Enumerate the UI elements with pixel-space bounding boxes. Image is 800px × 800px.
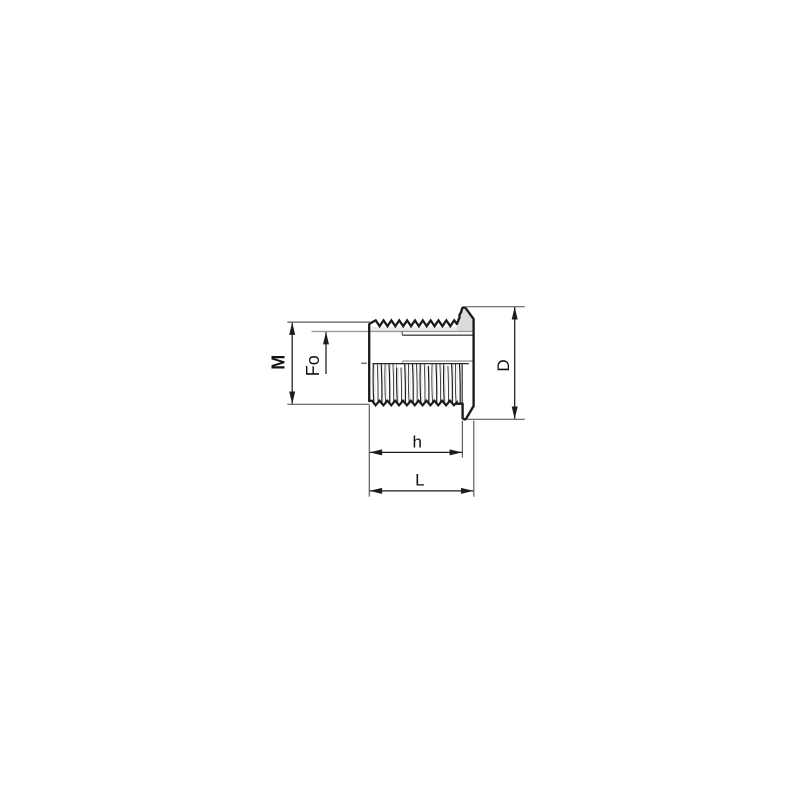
svg-text:L: L [415, 470, 424, 489]
svg-text:Fo: Fo [303, 355, 323, 376]
svg-text:h: h [412, 433, 421, 452]
svg-text:M: M [269, 355, 289, 370]
svg-text:D: D [494, 359, 513, 371]
